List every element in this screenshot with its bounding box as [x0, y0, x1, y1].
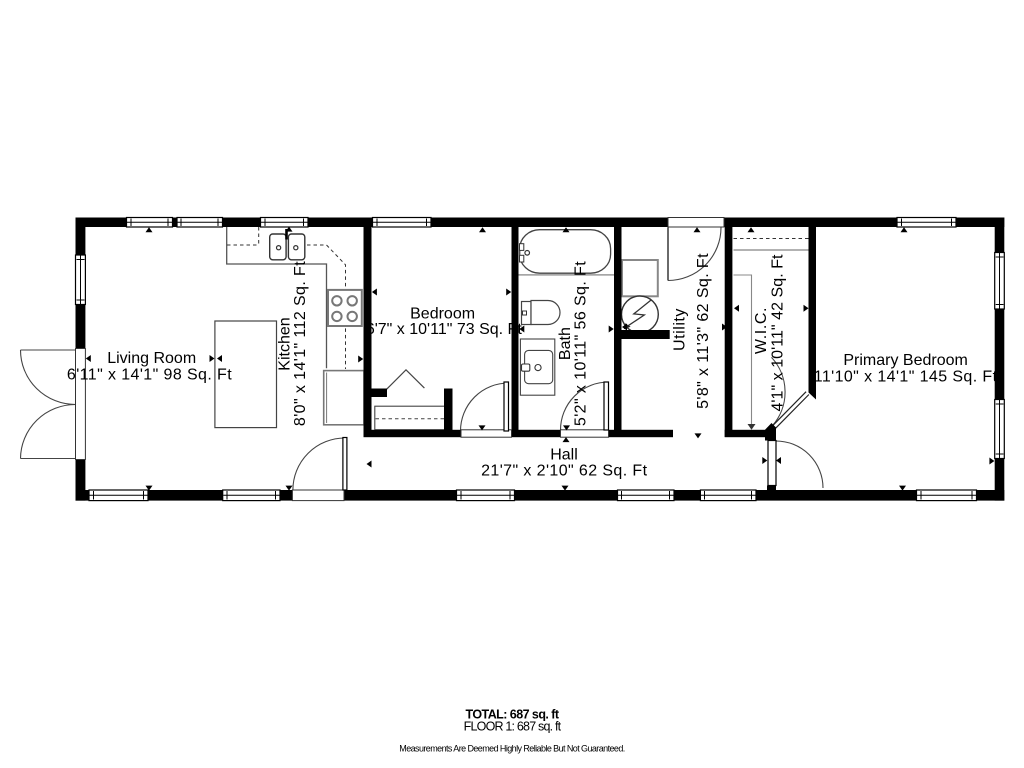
svg-text:W.I.C.: W.I.C.	[753, 307, 770, 354]
svg-text:Kitchen: Kitchen	[277, 317, 294, 370]
svg-text:6'11" x 14'1" 98 Sq. Ft: 6'11" x 14'1" 98 Sq. Ft	[67, 367, 232, 384]
svg-text:Bath: Bath	[557, 327, 574, 360]
svg-text:Primary Bedroom: Primary Bedroom	[843, 352, 967, 369]
svg-text:Measurements Are Deemed Highly: Measurements Are Deemed Highly Reliable …	[399, 744, 624, 754]
svg-text:Living Room: Living Room	[107, 350, 196, 367]
svg-text:21'7" x 2'10" 62 Sq. Ft: 21'7" x 2'10" 62 Sq. Ft	[481, 463, 647, 480]
svg-text:FLOOR 1: 687 sq. ft: FLOOR 1: 687 sq. ft	[464, 719, 562, 733]
svg-text:Utility: Utility	[672, 308, 689, 351]
svg-text:Bedroom: Bedroom	[410, 306, 475, 323]
svg-text:6'7" x 10'11" 73 Sq. Ft: 6'7" x 10'11" 73 Sq. Ft	[366, 321, 522, 338]
svg-text:Hall: Hall	[550, 447, 578, 464]
svg-text:5'8" x 11'3" 62 Sq. Ft: 5'8" x 11'3" 62 Sq. Ft	[695, 253, 712, 409]
svg-text:5'2" x 10'11" 56 Sq. Ft: 5'2" x 10'11" 56 Sq. Ft	[573, 261, 590, 426]
svg-text:11'10" x 14'1" 145 Sq. Ft: 11'10" x 14'1" 145 Sq. Ft	[814, 369, 998, 386]
svg-text:4'1" x 10'11" 42 Sq. Ft: 4'1" x 10'11" 42 Sq. Ft	[770, 254, 787, 412]
svg-text:8'0" x 14'1" 112 Sq. Ft: 8'0" x 14'1" 112 Sq. Ft	[292, 261, 309, 426]
